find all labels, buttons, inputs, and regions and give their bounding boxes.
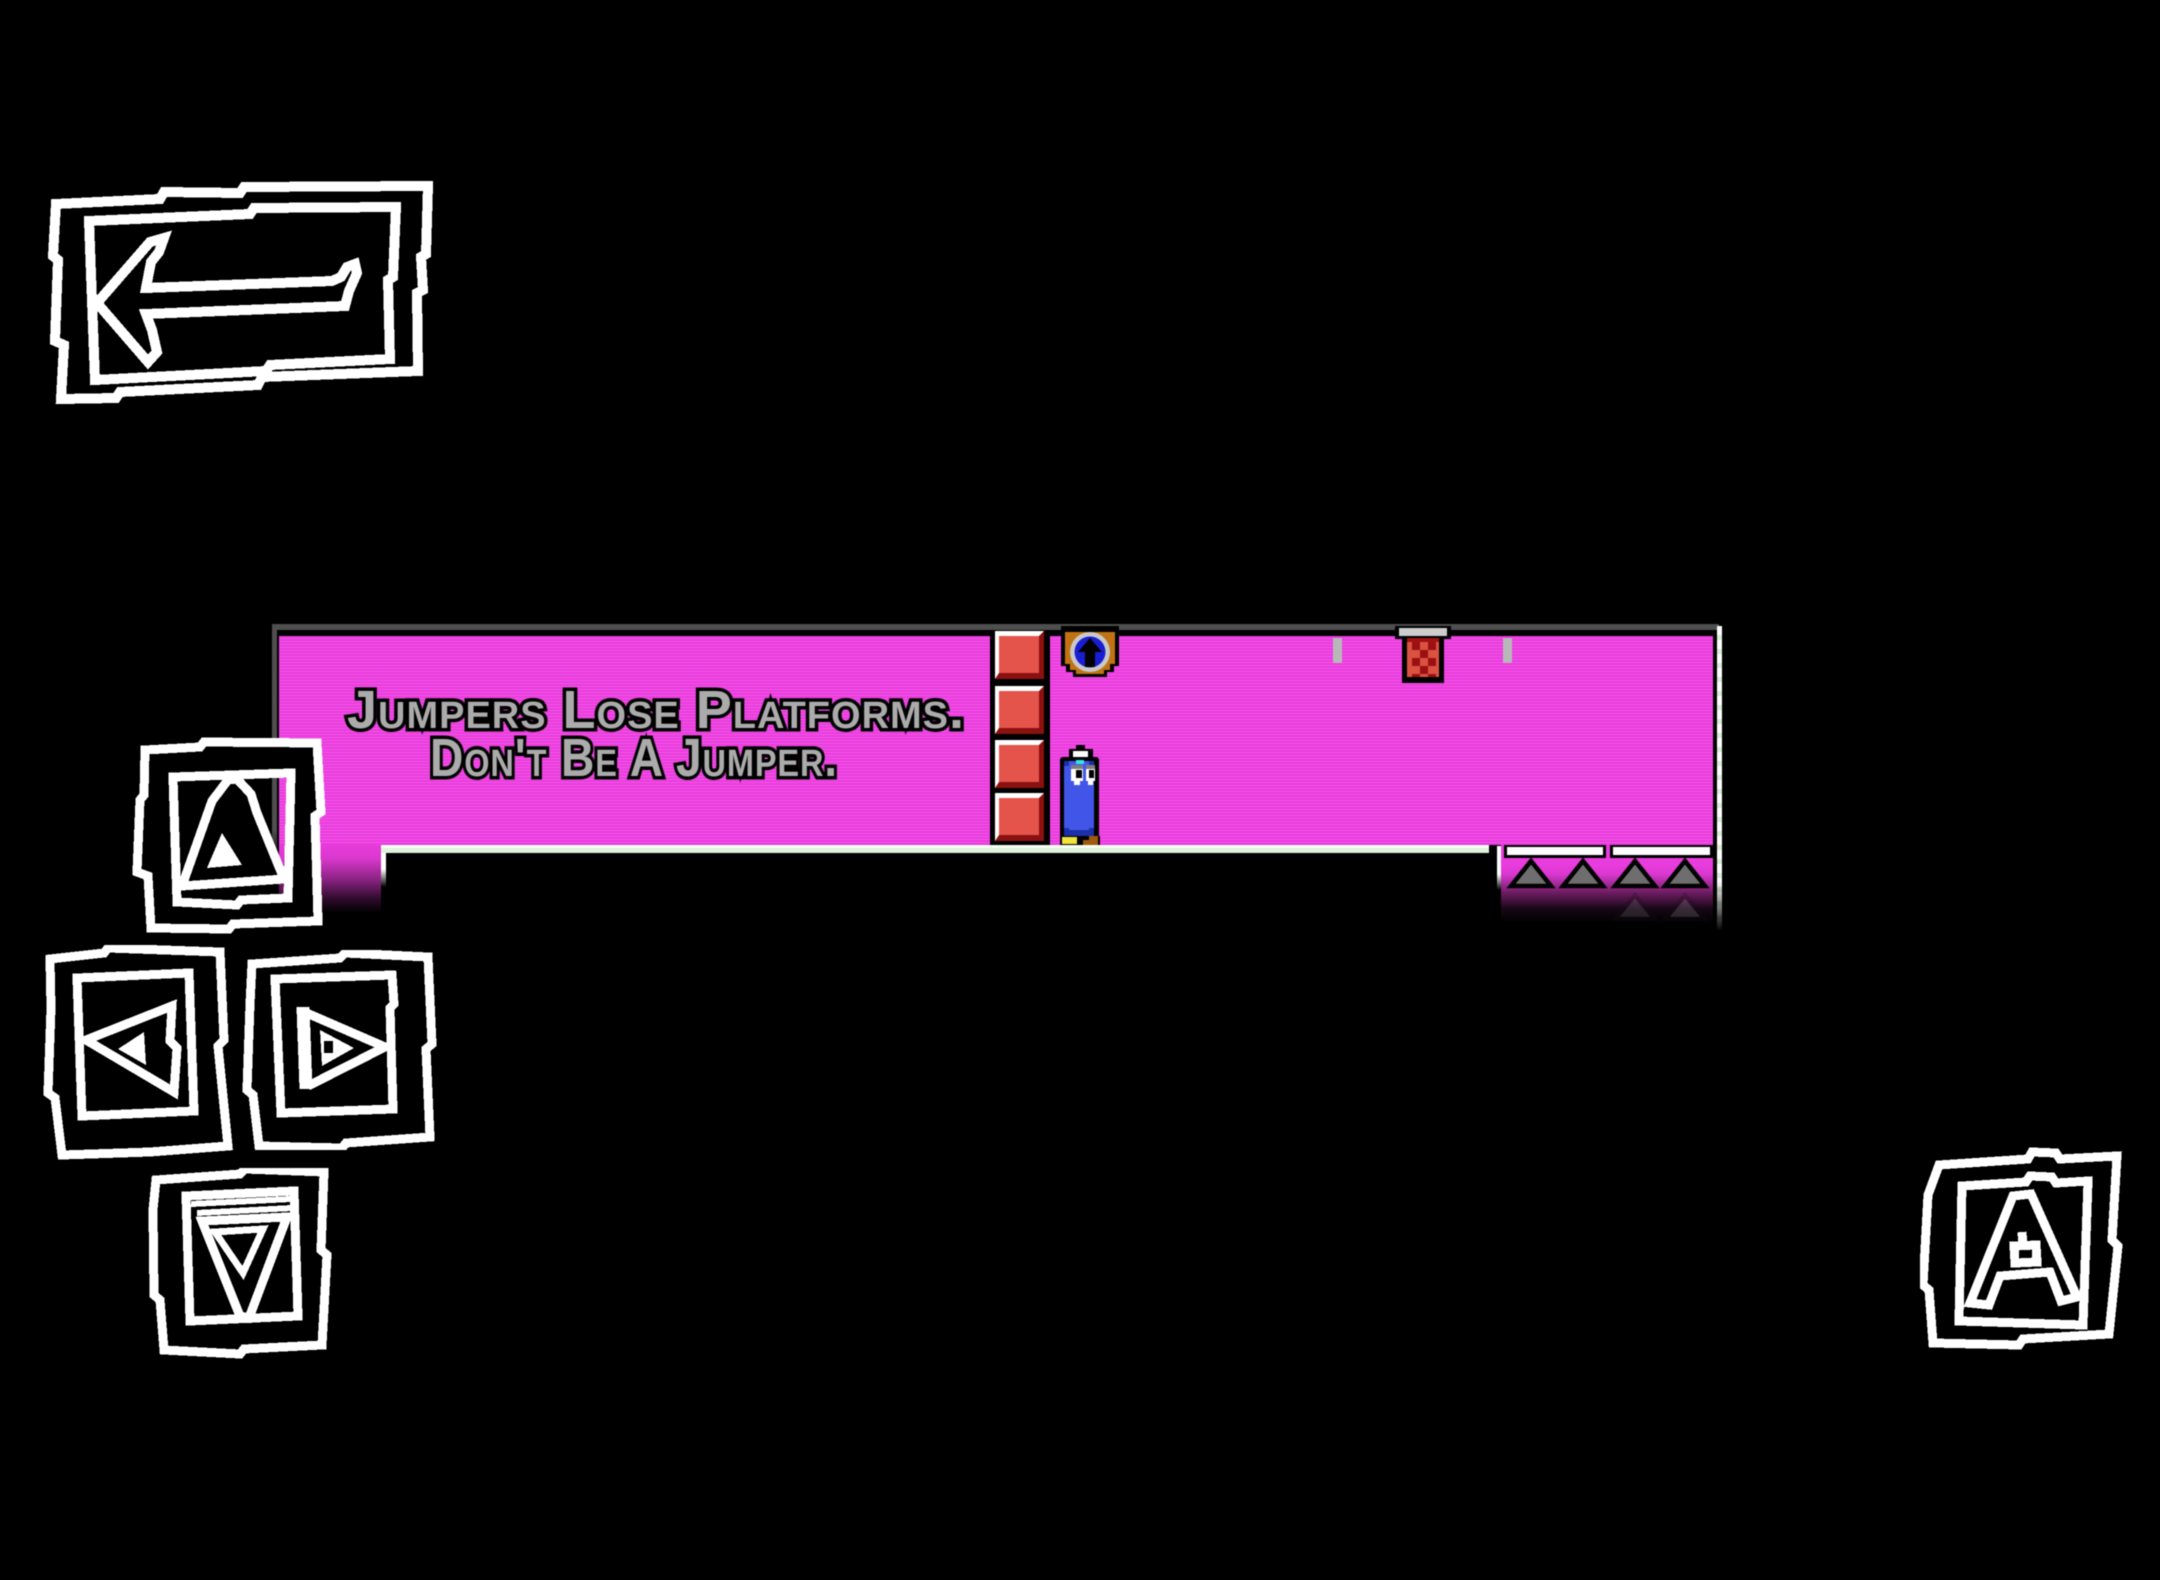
svg-text:Don't Be A Jumper.: Don't Be A Jumper.	[430, 728, 838, 788]
